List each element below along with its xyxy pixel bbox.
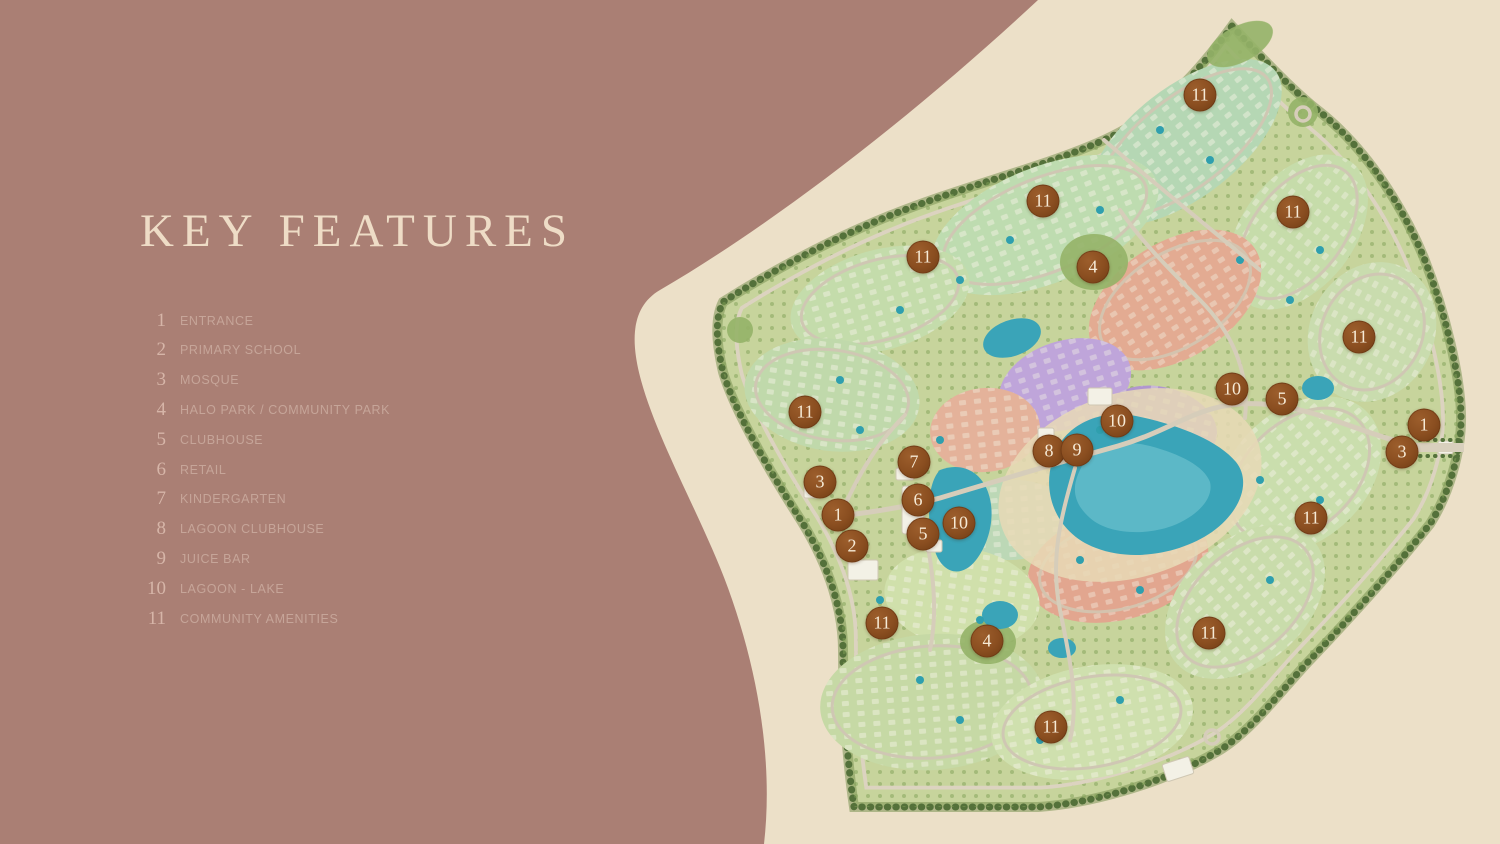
legend-item-number: 9 xyxy=(140,548,166,570)
legend-item-label: RETAIL xyxy=(180,463,226,477)
legend-item-number: 5 xyxy=(140,429,166,451)
map-marker-lagoon-lake[interactable]: 10 xyxy=(1216,373,1249,406)
map-marker-community-amenities[interactable]: 11 xyxy=(1295,502,1328,535)
legend-item-number: 7 xyxy=(140,488,166,510)
map-marker-community-amenities[interactable]: 11 xyxy=(1193,617,1226,650)
map-marker-mosque[interactable]: 3 xyxy=(1386,436,1419,469)
map-marker-halo-park-community-park[interactable]: 4 xyxy=(1077,251,1110,284)
legend-item-label: COMMUNITY AMENITIES xyxy=(180,612,338,626)
map-marker-juice-bar[interactable]: 9 xyxy=(1061,434,1094,467)
legend-item: 3MOSQUE xyxy=(140,365,600,395)
map-marker-community-amenities[interactable]: 11 xyxy=(1027,185,1060,218)
legend-item-label: PRIMARY SCHOOL xyxy=(180,343,301,357)
map-marker-lagoon-lake[interactable]: 10 xyxy=(943,507,976,540)
legend-item-number: 6 xyxy=(140,459,166,481)
legend-item: 6RETAIL xyxy=(140,455,600,485)
map-marker-community-amenities[interactable]: 11 xyxy=(1184,79,1217,112)
legend-item: 9JUICE BAR xyxy=(140,544,600,574)
legend-item: 4HALO PARK / COMMUNITY PARK xyxy=(140,395,600,425)
legend-item-label: LAGOON CLUBHOUSE xyxy=(180,522,324,536)
legend-item-label: CLUBHOUSE xyxy=(180,433,263,447)
legend-item-label: LAGOON - LAKE xyxy=(180,582,284,596)
key-features-panel: KEY FEATURES 1ENTRANCE2PRIMARY SCHOOL3MO… xyxy=(140,206,600,633)
legend-item: 8LAGOON CLUBHOUSE xyxy=(140,514,600,544)
legend-item-label: ENTRANCE xyxy=(180,314,254,328)
map-marker-community-amenities[interactable]: 11 xyxy=(1277,196,1310,229)
map-marker-lagoon-lake[interactable]: 10 xyxy=(1101,405,1134,438)
legend-item: 1ENTRANCE xyxy=(140,306,600,336)
legend-item: 10LAGOON - LAKE xyxy=(140,574,600,604)
legend-item-number: 4 xyxy=(140,399,166,421)
map-marker-community-amenities[interactable]: 11 xyxy=(907,241,940,274)
legend-item-number: 10 xyxy=(140,578,166,600)
legend-list: 1ENTRANCE2PRIMARY SCHOOL3MOSQUE4HALO PAR… xyxy=(140,306,600,634)
legend-item: 11COMMUNITY AMENITIES xyxy=(140,604,600,634)
map-marker-entrance[interactable]: 1 xyxy=(1408,409,1441,442)
map-marker-community-amenities[interactable]: 11 xyxy=(866,607,899,640)
legend-item: 7KINDERGARTEN xyxy=(140,484,600,514)
legend-item: 2PRIMARY SCHOOL xyxy=(140,335,600,365)
map-marker-clubhouse[interactable]: 5 xyxy=(907,518,940,551)
legend-item-number: 3 xyxy=(140,369,166,391)
legend-item-number: 11 xyxy=(140,608,166,630)
map-marker-entrance[interactable]: 1 xyxy=(822,499,855,532)
page-title: KEY FEATURES xyxy=(140,206,600,258)
map-marker-mosque[interactable]: 3 xyxy=(804,466,837,499)
map-marker-clubhouse[interactable]: 5 xyxy=(1266,383,1299,416)
legend-item-label: MOSQUE xyxy=(180,373,239,387)
map-marker-halo-park-community-park[interactable]: 4 xyxy=(971,625,1004,658)
legend-item-label: KINDERGARTEN xyxy=(180,492,286,506)
legend-item-label: JUICE BAR xyxy=(180,552,251,566)
legend-item-number: 2 xyxy=(140,339,166,361)
map-marker-community-amenities[interactable]: 11 xyxy=(789,396,822,429)
map-marker-primary-school[interactable]: 2 xyxy=(836,530,869,563)
map-marker-retail[interactable]: 6 xyxy=(902,484,935,517)
map-marker-kindergarten[interactable]: 7 xyxy=(898,446,931,479)
map-marker-community-amenities[interactable]: 11 xyxy=(1343,321,1376,354)
map-marker-community-amenities[interactable]: 11 xyxy=(1035,711,1068,744)
page: KEY FEATURES 1ENTRANCE2PRIMARY SCHOOL3MO… xyxy=(0,0,1500,844)
legend-item-number: 1 xyxy=(140,310,166,332)
legend-item-label: HALO PARK / COMMUNITY PARK xyxy=(180,403,390,417)
legend-item: 5CLUBHOUSE xyxy=(140,425,600,455)
legend-item-number: 8 xyxy=(140,518,166,540)
